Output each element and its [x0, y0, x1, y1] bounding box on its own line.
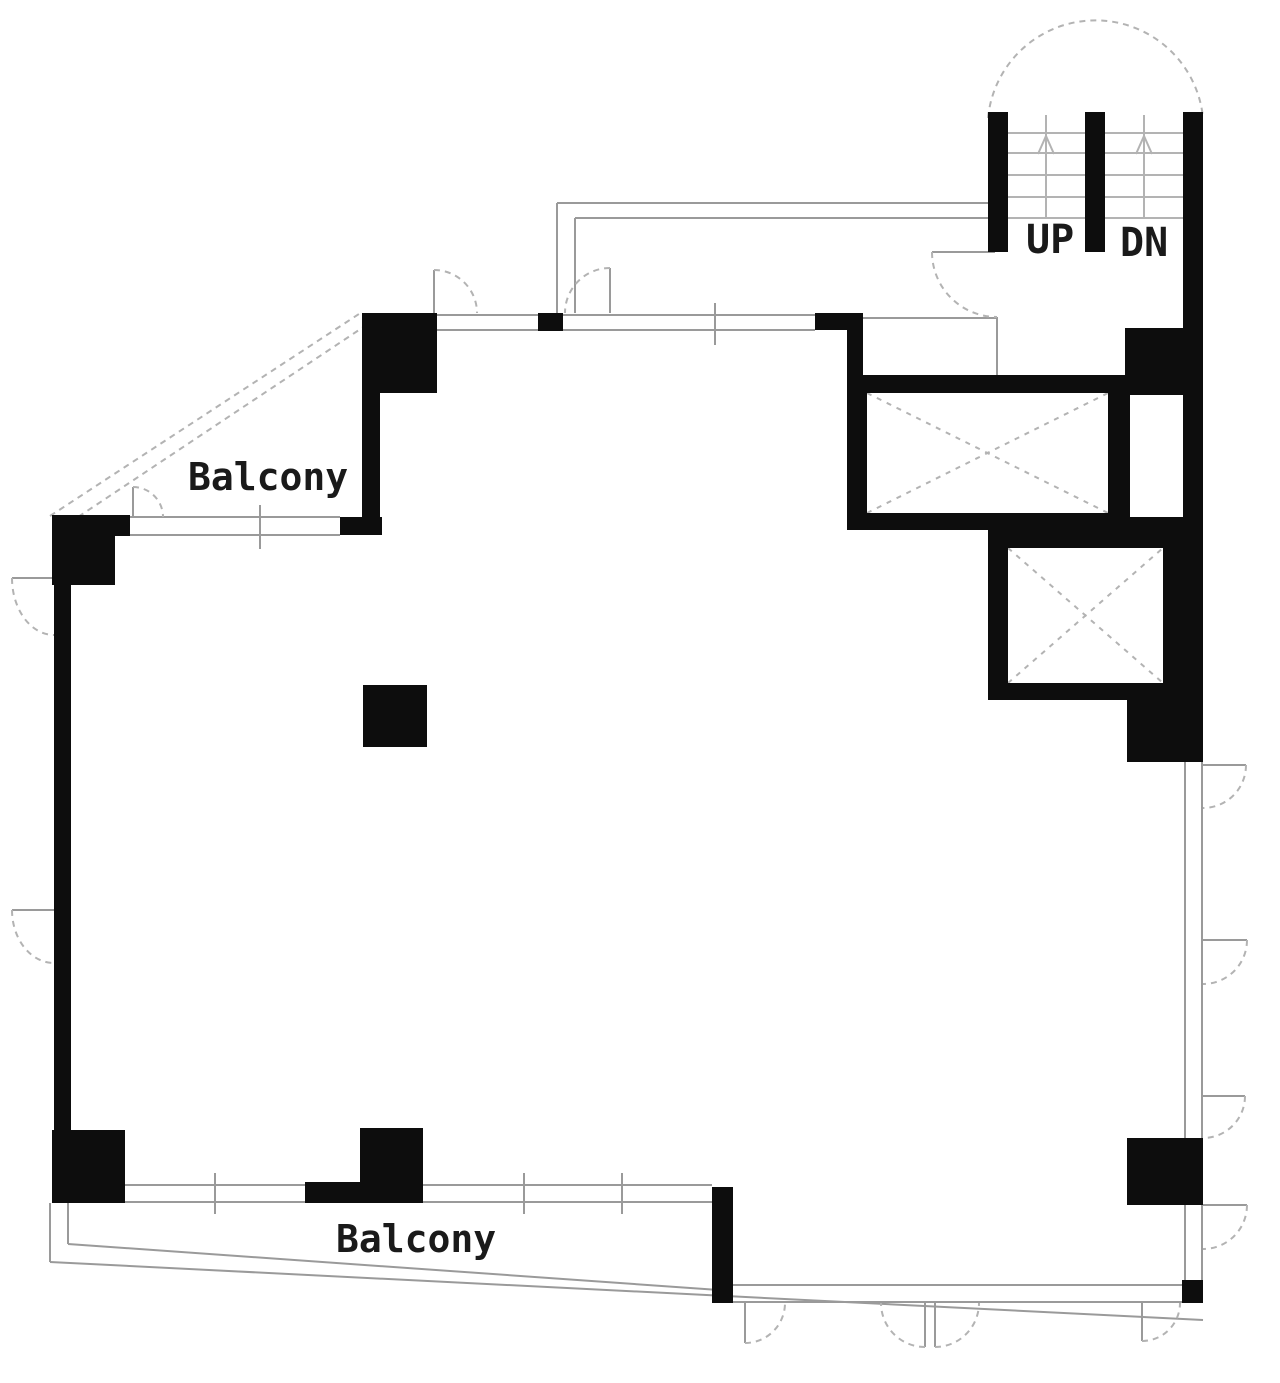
column	[52, 1130, 125, 1203]
label-balcony-lower: Balcony	[336, 1217, 496, 1261]
elevator-2-left-wall	[988, 548, 1008, 700]
floor-plan-page: Balcony Balcony UP DN	[0, 0, 1280, 1383]
elevator-1-bottom-wall	[847, 513, 1128, 530]
elevator-shaft-2-x	[1008, 548, 1163, 683]
right-window-band-lower	[1185, 1205, 1202, 1280]
corner-block	[1182, 1280, 1203, 1303]
door-arc	[434, 270, 477, 313]
label-stairs-down: DN	[1120, 220, 1168, 266]
elevator-2-bottom-wall	[988, 683, 1183, 700]
right-door-arc	[1203, 765, 1246, 808]
left-window-arc	[12, 910, 54, 963]
right-door-arc	[1203, 1205, 1247, 1249]
window-mullion-ticks	[215, 303, 715, 1214]
label-stairs-up: UP	[1026, 217, 1074, 263]
floor-plan-svg: Balcony Balcony UP DN	[0, 0, 1280, 1383]
door-arc-group	[12, 252, 1247, 1347]
bottom-double-door-arc-left	[881, 1303, 925, 1347]
bottom-double-door-arc-right	[935, 1303, 979, 1347]
elevator-2-top-wall	[988, 530, 1183, 548]
stair-landing-arc	[988, 20, 1203, 118]
wall-foot	[340, 517, 382, 535]
elevator-2-right-wall	[1163, 533, 1183, 700]
lower-balcony-left-edge	[50, 1203, 68, 1262]
free-standing-column	[363, 685, 427, 747]
lower-balcony-rail-outer	[50, 1262, 1203, 1320]
right-door-arc	[1203, 940, 1247, 984]
column	[1127, 1138, 1203, 1205]
right-wall	[1183, 112, 1203, 762]
door-leaf-group	[12, 252, 1247, 1347]
stair-wall-middle	[1085, 112, 1105, 252]
balcony-end-wall	[712, 1187, 733, 1303]
bottom-door-arc	[745, 1303, 785, 1343]
lobby-door-arc	[932, 252, 997, 317]
column	[52, 515, 115, 585]
label-balcony-upper: Balcony	[188, 455, 348, 499]
left-wall	[54, 517, 71, 1203]
wall-segment	[538, 313, 563, 331]
window-band-group	[125, 303, 1203, 1302]
elevator-1-top-wall	[847, 375, 1128, 393]
column	[360, 1128, 423, 1203]
top-window-band	[437, 315, 815, 330]
elevator-shaft-1-x	[867, 393, 1108, 513]
right-window-band-upper	[1185, 762, 1202, 1138]
balcony-door-arc	[133, 487, 163, 517]
stair-wall-left	[988, 112, 1008, 252]
elevator-1-right-wall	[1108, 393, 1130, 517]
outline-group	[557, 203, 997, 377]
left-window-arc	[12, 578, 54, 635]
right-door-leaves	[1203, 765, 1247, 1205]
upper-balcony-window-band	[130, 517, 340, 535]
elevator-1-left-wall	[847, 393, 867, 530]
labels-group: Balcony Balcony UP DN	[188, 217, 1168, 1261]
column	[362, 313, 437, 393]
bottom-door-leaves	[745, 1303, 1142, 1347]
corner-block	[1125, 328, 1203, 395]
door-arc	[565, 268, 610, 313]
wall-stem	[362, 393, 380, 535]
walls-group	[52, 112, 1203, 1303]
right-door-arc	[1203, 1096, 1245, 1138]
bottom-door-arc	[1142, 1303, 1180, 1341]
column-foot	[305, 1182, 363, 1203]
